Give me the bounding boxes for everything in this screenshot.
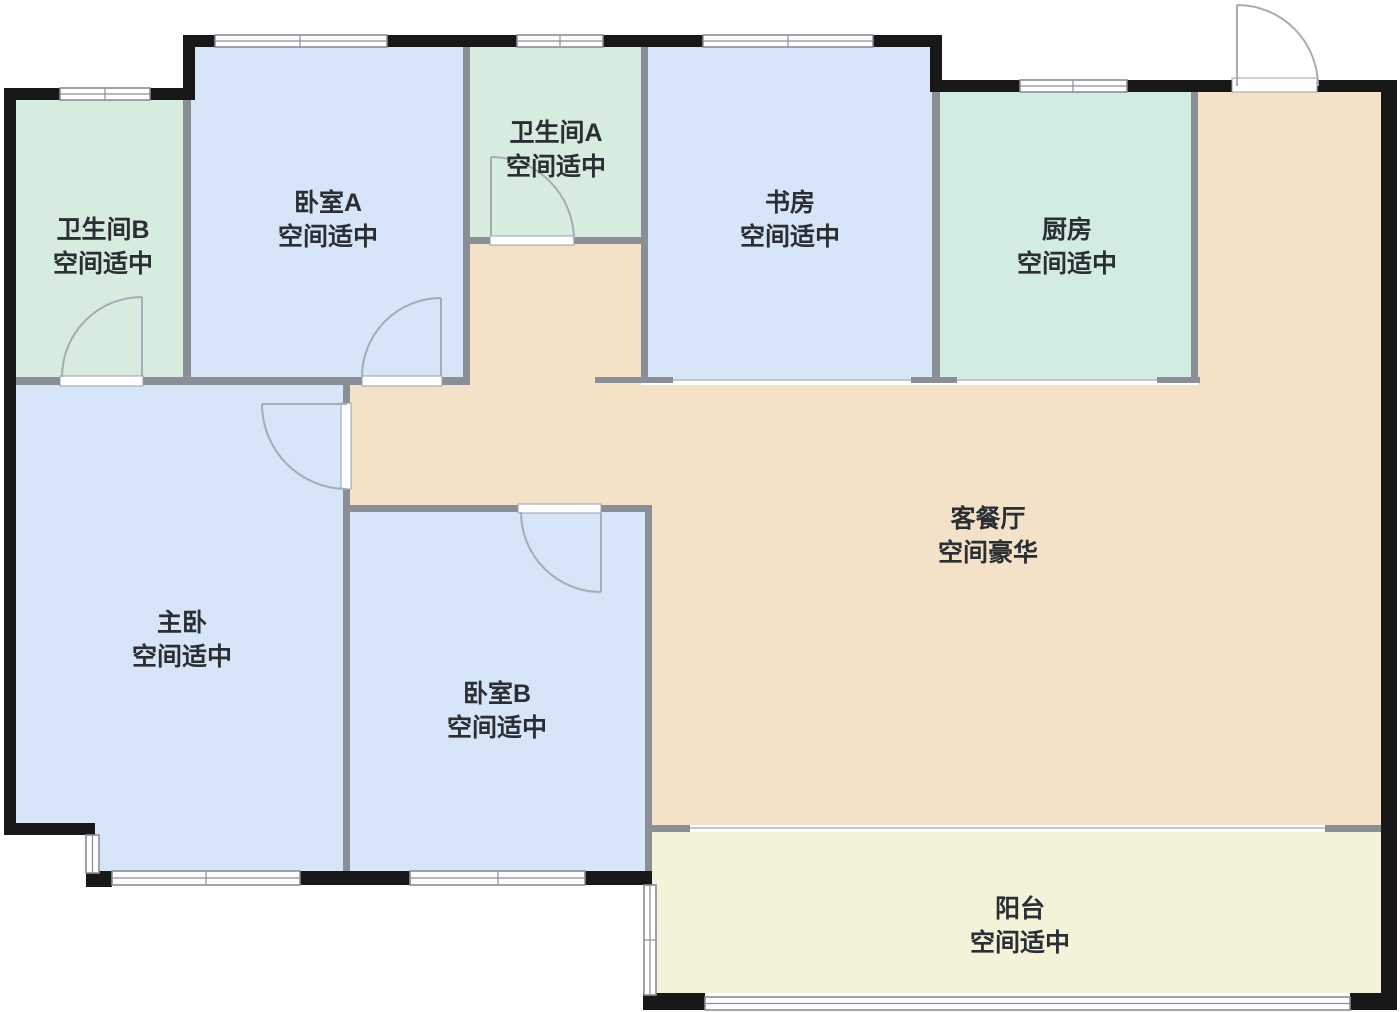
room-fills [16,47,1381,993]
wall-segment [938,80,1397,92]
window-bathroom-b [60,88,150,100]
window-balcony-bottom [705,997,1350,1010]
window-study [703,35,873,47]
door-opening-bathroom-a [490,236,574,245]
wall-segment [641,47,648,383]
window-bathroom-a [517,35,603,47]
room-fill-living-north [1198,92,1381,385]
room-label-master-bedroom-assessment: 空间适中 [132,642,232,671]
wall-segment [1325,825,1385,832]
wall-segment [911,377,957,383]
room-label-bedroom-a-name: 卧室A [294,188,362,217]
window-master-step [86,835,99,873]
wall-segment [645,512,652,877]
wall-segment [1350,993,1397,1010]
window-kitchen [1020,80,1127,92]
room-label-living-dining-assessment: 空间豪华 [938,538,1038,567]
window-master-bottom [112,871,300,885]
wall-segment [652,825,690,832]
wall-segment [1157,377,1200,383]
room-label-living-dining-name: 客餐厅 [950,504,1025,533]
room-label-bathroom-a-assessment: 空间适中 [506,152,606,181]
floor-plan: 卫生间B 空间适中 卧室A 空间适中 卫生间A 空间适中 书房 空间适中 厨房 … [0,0,1400,1012]
wall-segment [1191,92,1198,378]
door-opening-bathroom-b [60,376,143,386]
floor-plan-canvas: 卫生间B 空间适中 卧室A 空间适中 卫生间A 空间适中 书房 空间适中 厨房 … [0,0,1400,1012]
door-opening-master-bedroom [341,403,351,489]
wall-segment [1381,80,1397,1010]
room-label-balcony-assessment: 空间适中 [970,928,1070,957]
room-label-bathroom-b-assessment: 空间适中 [53,249,153,278]
room-label-master-bedroom-name: 主卧 [157,609,207,637]
wall-segment [595,377,673,383]
room-label-bedroom-b-assessment: 空间适中 [447,713,547,742]
window-bedroom-a [215,35,387,47]
room-fill-corridor [470,240,641,385]
room-label-kitchen-assessment: 空间适中 [1017,249,1117,278]
door-swing-entry [1237,5,1318,86]
door-opening-entry [1232,78,1317,92]
wall-segment [4,88,16,835]
room-label-bathroom-a-name: 卫生间A [509,119,602,147]
room-label-kitchen-name: 厨房 [1042,215,1092,244]
wall-segment [463,47,470,385]
window-balcony-left [644,885,656,995]
wall-segment [932,92,940,378]
room-label-study-assessment: 空间适中 [740,222,840,251]
wall-segment [4,823,95,835]
door-opening-bedroom-a [362,376,442,386]
door-opening-bedroom-b [518,504,601,513]
window-bedroom-b-bottom [410,871,585,885]
wall-segment [183,35,195,100]
room-label-bedroom-a-assessment: 空间适中 [278,222,378,251]
room-label-bedroom-b-name: 卧室B [463,679,531,708]
room-label-bathroom-b-name: 卫生间B [56,216,149,244]
wall-segment [350,505,652,512]
room-label-study-name: 书房 [765,188,815,217]
wall-segment [183,100,191,378]
room-label-balcony-name: 阳台 [995,894,1045,923]
